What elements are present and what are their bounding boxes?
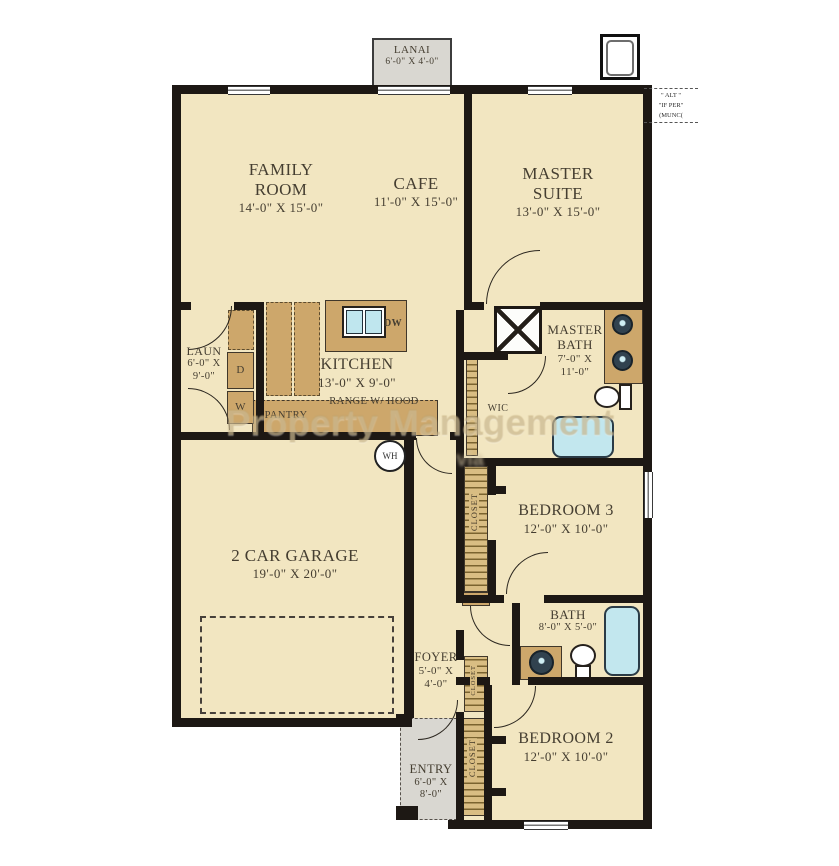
kitchen-dims: 13'-0" X 9'-0" [302,375,412,390]
wall-stub [488,486,506,494]
lanai-label: LANAI [374,44,450,57]
closet-label: CLOSET [470,664,477,697]
cafe: CAFE 11'-0" X 15'-0" [362,174,470,209]
wall [528,677,652,685]
wall [540,302,652,310]
bath2-label: BATH [522,607,614,622]
wall [456,595,504,603]
dishwasher-label: DW [380,318,406,330]
vanity-sink [612,350,633,371]
wall [643,85,652,829]
wall [544,595,652,603]
master-suite-dims: 13'-0" X 15'-0" [502,204,614,219]
toilet [594,386,620,408]
lanai: LANAI 6'-0" X 4'-0" [374,44,450,68]
washer-label: W [235,401,246,414]
floor-plan: DW D W CLOSET CLOSET CLOSET WH " ALT " "… [0,0,839,866]
window [524,821,568,830]
wall [464,352,508,360]
laundry-label: LAUN [180,344,228,358]
family-room: FAMILY ROOM 14'-0" X 15'-0" [222,160,340,215]
closet-label: CLOSET [467,738,477,778]
garage-door-dashed [200,616,394,714]
kitchen-label: KITCHEN [302,356,412,375]
master-suite: MASTER SUITE 13'-0" X 15'-0" [502,164,614,219]
wall-stub [396,714,412,726]
bedroom2-dims: 12'-0" X 10'-0" [492,749,640,764]
bathtub [552,416,614,458]
wall [484,685,492,820]
sink-basin [346,310,363,334]
wall [456,310,464,595]
wic-label: WIC [480,403,516,415]
wall-stub [396,806,418,820]
annotation-line: " ALT " [644,91,698,101]
window [528,86,572,95]
dryer-label: D [236,364,244,377]
cafe-label: CAFE [362,174,470,194]
water-heater-label: WH [383,451,398,461]
detail-square-inner [606,40,634,76]
garage-dims: 19'-0" X 20'-0" [230,566,360,581]
family-room-label: FAMILY ROOM [222,160,340,200]
wall [512,603,520,685]
pantry-cabinet [266,302,292,396]
bedroom2: BEDROOM 2 12'-0" X 10'-0" [492,730,640,764]
bedroom2-label: BEDROOM 2 [492,730,640,749]
foyer-label: FOYER [406,650,466,665]
pantry-label: PANTRY [256,410,316,422]
foyer: FOYER 5'-0" X 4'-0" [406,650,466,691]
water-heater: WH [374,440,406,472]
cafe-dims: 11'-0" X 15'-0" [362,194,470,209]
bedroom3-label: BEDROOM 3 [492,502,640,521]
laundry-dims: 6'-0" X 9'-0" [180,358,228,383]
wall [181,432,416,440]
plan-annotation: " ALT " "IF PER" (MUNC( [644,88,698,123]
washer: W [227,391,254,424]
bath2: BATH 8'-0" X 5'-0" [522,607,614,635]
wall [181,302,191,310]
master-bath-label: MASTER BATH [544,322,606,353]
master-bath: MASTER BATH 7'-0" X 11'-0" [544,322,606,379]
bath2-dims: 8'-0" X 5'-0" [522,622,614,634]
wall [488,540,496,595]
laundry: LAUN 6'-0" X 9'-0" [180,344,228,383]
range-hood-label: RANGE W/ HOOD [326,396,422,408]
vanity-sink [612,314,633,335]
wall [456,458,652,466]
wall-stub [490,788,506,796]
annotation-line: "IF PER" [644,101,698,111]
window [228,86,270,95]
closet-label: CLOSET [469,492,479,532]
entry: ENTRY 6'-0" X 8'-0" [402,762,460,802]
bedroom3-dims: 12'-0" X 10'-0" [492,521,640,536]
master-bath-dims: 7'-0" X 11'-0" [544,353,606,379]
shower [494,306,542,354]
foyer-dims: 5'-0" X 4'-0" [406,665,466,691]
entry-dims: 6'-0" X 8'-0" [402,777,460,802]
cabinet [228,310,254,350]
wall [464,302,484,310]
sliding-door [378,86,450,95]
family-room-dims: 14'-0" X 15'-0" [222,200,340,215]
lanai-dims: 6'-0" X 4'-0" [374,57,450,68]
kitchen: KITCHEN 13'-0" X 9'-0" [302,356,412,390]
detail-square [600,34,640,80]
window [644,472,653,518]
wall [172,85,181,727]
toilet [570,644,596,667]
garage-label: 2 CAR GARAGE [230,546,360,566]
dryer: D [227,352,254,389]
garage: 2 CAR GARAGE 19'-0" X 20'-0" [230,546,360,581]
annotation-line: (MUNC( [644,111,698,121]
bedroom3: BEDROOM 3 12'-0" X 10'-0" [492,502,640,536]
master-suite-label: MASTER SUITE [502,164,614,204]
wall [172,718,412,727]
bath-sink [529,650,554,675]
toilet-tank [619,384,632,410]
linen-closet [466,354,478,456]
entry-label: ENTRY [402,762,460,777]
